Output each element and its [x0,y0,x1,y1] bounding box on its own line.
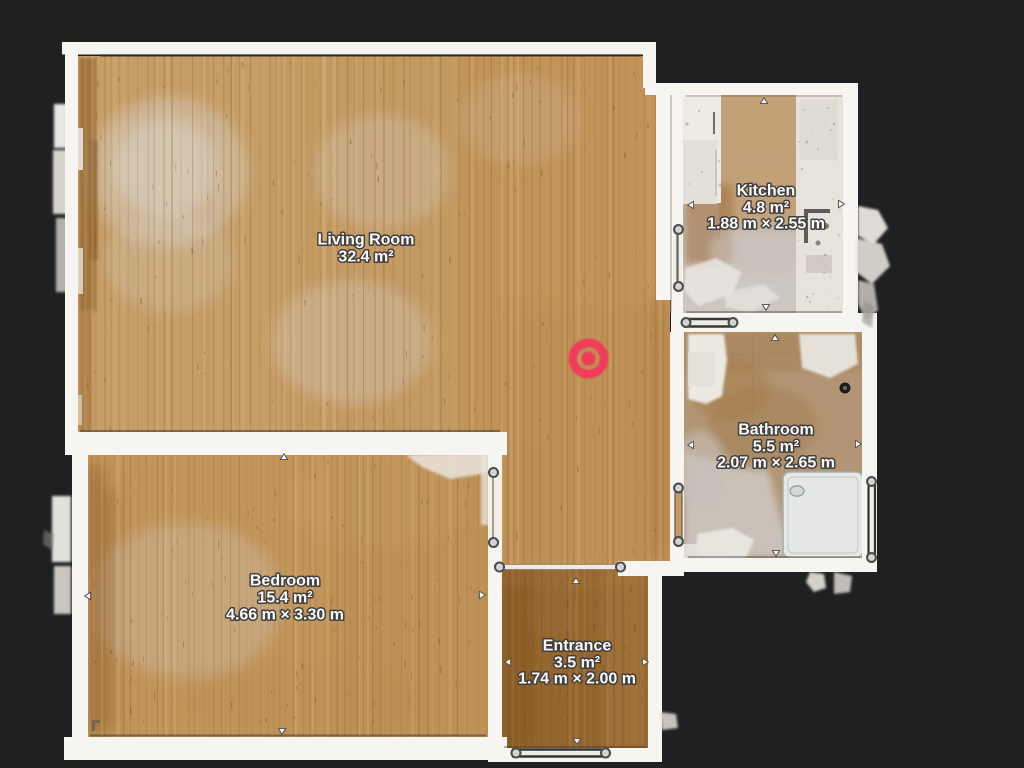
svg-text:4.66 m × 3.30 m: 4.66 m × 3.30 m [226,607,344,624]
svg-text:32.4 m²: 32.4 m² [338,249,393,266]
svg-text:Bedroom: Bedroom [250,573,320,590]
svg-text:3.5 m²: 3.5 m² [554,655,600,672]
svg-text:1.74 m × 2.00 m: 1.74 m × 2.00 m [518,671,636,688]
svg-text:2.07 m × 2.65 m: 2.07 m × 2.65 m [717,455,835,472]
svg-text:Bathroom: Bathroom [738,422,814,439]
svg-text:15.4 m²: 15.4 m² [257,590,312,607]
svg-text:Entrance: Entrance [543,638,612,655]
svg-text:5.5 m²: 5.5 m² [753,439,799,456]
svg-text:1.88 m × 2.55 m: 1.88 m × 2.55 m [707,216,825,233]
svg-text:Living Room: Living Room [318,232,415,249]
svg-text:4.8 m²: 4.8 m² [743,200,789,217]
svg-text:Kitchen: Kitchen [737,183,796,200]
